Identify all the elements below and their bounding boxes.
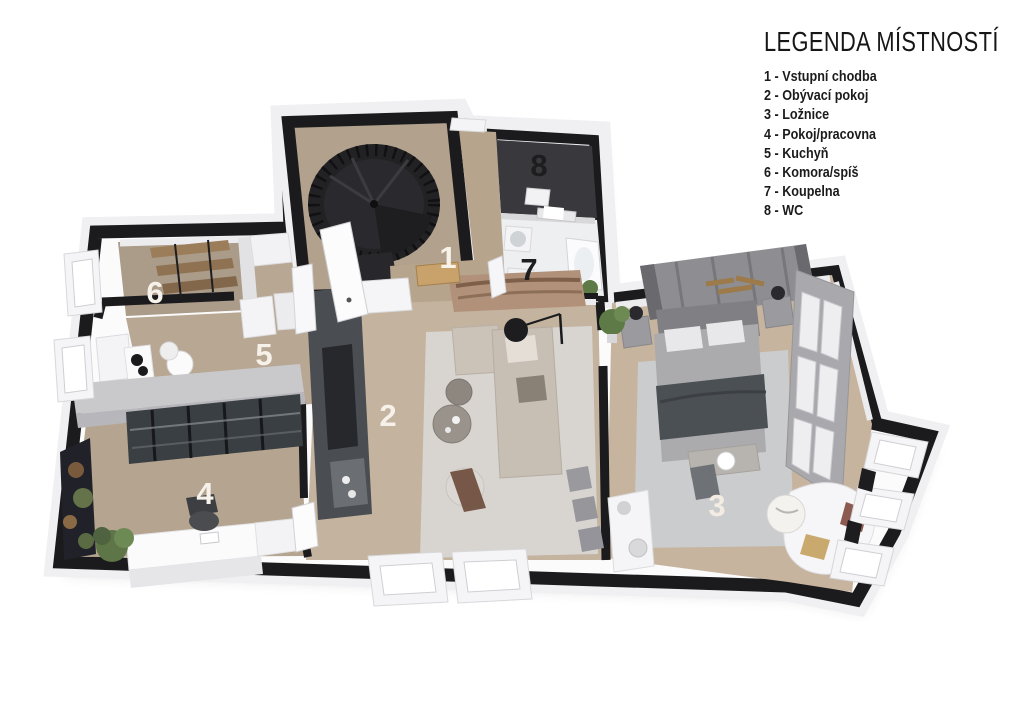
vanity-desk xyxy=(608,490,654,572)
legend-item-8: 8 - WC xyxy=(764,201,981,220)
legend-item-4: 4 - Pokoj/pracovna xyxy=(764,125,981,144)
legend-item-6: 6 - Komora/spíš xyxy=(764,163,981,182)
chair xyxy=(578,526,604,552)
legend: LEGENDA MÍSTNOSTÍ 1 - Vstupní chodba 2 -… xyxy=(764,26,1022,221)
laptop xyxy=(200,532,219,544)
toilet xyxy=(525,188,550,206)
legend-title: LEGENDA MÍSTNOSTÍ xyxy=(764,26,965,58)
room-number-bedroom: 3 xyxy=(708,488,725,523)
room-number-wc: 8 xyxy=(530,148,547,183)
room-number-living: 2 xyxy=(379,398,396,433)
tray xyxy=(717,452,735,470)
chair xyxy=(572,496,598,522)
legend-item-1: 1 - Vstupní chodba xyxy=(764,67,981,86)
chair xyxy=(160,342,178,360)
stool xyxy=(629,539,647,557)
nightstand xyxy=(762,296,794,328)
lamp-icon xyxy=(629,306,643,320)
legend-item-7: 7 - Koupelna xyxy=(764,182,981,201)
tv-screen xyxy=(322,344,358,450)
coffee-table xyxy=(446,379,472,405)
entry-door xyxy=(450,118,486,132)
chair xyxy=(566,466,592,492)
sofa-pillow-dark xyxy=(516,375,547,403)
floorplan-poster: 1 2 3 4 5 6 7 8 LEGENDA MÍSTNOSTÍ 1 - Vs… xyxy=(0,0,1024,724)
coffee-table-large xyxy=(433,405,471,443)
tv-shelf xyxy=(330,458,368,508)
burner-icon xyxy=(131,354,143,366)
room-number-hall: 1 xyxy=(439,240,456,275)
pillow xyxy=(664,326,703,352)
washer-door xyxy=(510,231,526,247)
legend-item-2: 2 - Obývací pokoj xyxy=(764,86,981,105)
office-door xyxy=(292,502,318,552)
legend-item-5: 5 - Kuchyň xyxy=(764,144,981,163)
tall-unit xyxy=(240,296,276,338)
pendant-lamp-icon xyxy=(504,318,528,342)
room-number-kitchen: 5 xyxy=(255,337,272,372)
room-number-pantry: 6 xyxy=(146,275,163,310)
lamp-icon xyxy=(771,286,785,300)
marble-side-table xyxy=(767,495,805,533)
vanity-mirror xyxy=(617,501,631,515)
towel xyxy=(543,206,564,220)
pillow xyxy=(706,320,745,346)
legend-items: 1 - Vstupní chodba 2 - Obývací pokoj 3 -… xyxy=(764,67,981,221)
room-number-office: 4 xyxy=(196,476,214,511)
room-number-bath: 7 xyxy=(520,252,537,287)
office-chair-seat xyxy=(189,511,219,531)
legend-item-3: 3 - Ložnice xyxy=(764,105,981,124)
door xyxy=(292,264,316,334)
burner-icon xyxy=(138,366,148,376)
entry-cabinet xyxy=(250,233,292,266)
